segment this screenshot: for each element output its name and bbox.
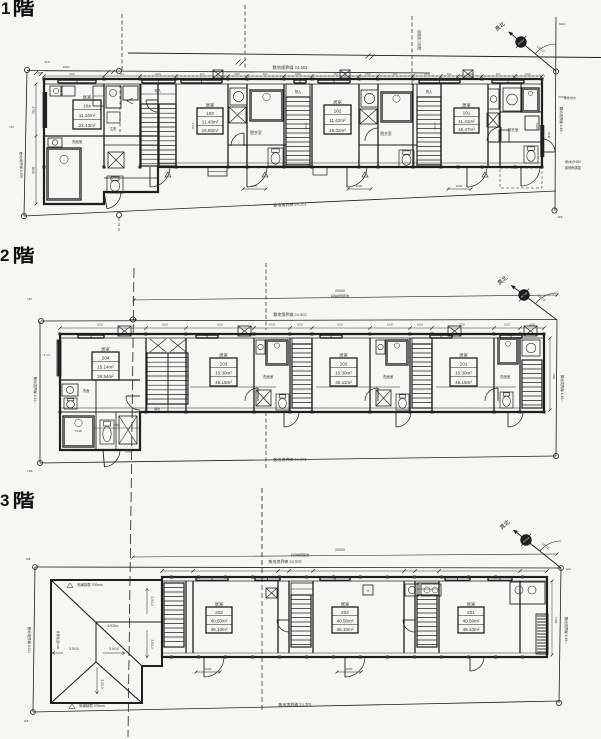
svg-text:H: H: [367, 588, 370, 593]
svg-text:1000: 1000: [346, 667, 353, 671]
svg-text:踊場: 踊場: [154, 406, 160, 411]
svg-text:15.30m²: 15.30m²: [335, 371, 352, 376]
svg-text:敷地境界線 24.201: 敷地境界線 24.201: [278, 701, 312, 708]
svg-text:斜線制限距離: 斜線制限距離: [331, 293, 349, 298]
svg-text:道路高さ制限: 道路高さ制限: [417, 30, 422, 51]
svg-text:敷地境界線 24.502: 敷地境界線 24.502: [273, 311, 307, 317]
svg-text:居室: 居室: [467, 601, 475, 608]
svg-text:910: 910: [200, 72, 205, 76]
svg-text:11.43m²: 11.43m²: [202, 119, 219, 124]
svg-text:40.50m²: 40.50m²: [211, 618, 228, 623]
svg-text:910: 910: [334, 72, 339, 76]
svg-text:№8: №8: [24, 719, 29, 723]
svg-text:910: 910: [263, 72, 268, 76]
svg-text:№9: №9: [566, 567, 571, 571]
svg-text:洗面室: 洗面室: [383, 374, 394, 379]
svg-text:1820: 1820: [525, 72, 531, 76]
svg-text:3.5/10: 3.5/10: [100, 679, 104, 688]
svg-text:203: 203: [215, 610, 223, 615]
svg-text:1000: 1000: [356, 184, 363, 188]
svg-text:7280: 7280: [552, 373, 556, 380]
svg-text:斜線制限 700mm: 斜線制限 700mm: [79, 703, 105, 708]
svg-text:洗面室: 洗面室: [500, 374, 511, 379]
svg-text:1000: 1000: [251, 184, 258, 188]
svg-text:階: 階: [13, 246, 35, 266]
svg-text:910: 910: [44, 60, 49, 64]
svg-text:1820: 1820: [424, 72, 430, 76]
svg-text:16.47m²: 16.47m²: [458, 127, 475, 132]
svg-text:1820: 1820: [387, 323, 394, 327]
svg-text:接続側溝蓋: 接続側溝蓋: [565, 165, 582, 170]
svg-text:1820: 1820: [295, 72, 301, 76]
svg-text:15.30m²: 15.30m²: [215, 371, 232, 376]
svg-text:洗濯: 洗濯: [125, 448, 131, 453]
svg-text:2730: 2730: [433, 123, 437, 130]
svg-text:居室: 居室: [215, 601, 223, 608]
svg-text:隣地境界線 4.45□: 隣地境界線 4.45□: [559, 107, 564, 134]
svg-text:45.15m²: 45.15m²: [215, 380, 232, 385]
svg-text:1820: 1820: [297, 323, 304, 327]
svg-text:16.02m²: 16.02m²: [329, 128, 346, 133]
svg-text:1000: 1000: [456, 184, 463, 188]
svg-text:455: 455: [37, 71, 42, 75]
svg-text:45.10m²: 45.10m²: [463, 627, 480, 632]
svg-text:6.526m: 6.526m: [108, 624, 119, 628]
svg-text:脱衣室: 脱衣室: [508, 127, 519, 132]
svg-text:22.43m²: 22.43m²: [79, 123, 96, 128]
svg-text:202: 202: [341, 610, 349, 615]
svg-text:斜線制限 700mm: 斜線制限 700mm: [77, 582, 103, 587]
svg-text:隣地境界線 4.45□: 隣地境界線 4.45□: [564, 617, 569, 644]
svg-text:敷地境界線 24.502: 敷地境界線 24.502: [268, 558, 302, 564]
svg-text:104: 104: [83, 104, 91, 109]
svg-text:11.42m²: 11.42m²: [329, 118, 346, 123]
svg-text:敷地境界線 8.206: 敷地境界線 8.206: [19, 152, 25, 179]
svg-text:910: 910: [496, 72, 501, 76]
svg-text:1820: 1820: [417, 323, 424, 327]
svg-text:1820: 1820: [97, 323, 104, 327]
svg-text:45.11m²: 45.11m²: [335, 380, 352, 385]
svg-text:16.82m²: 16.82m²: [202, 128, 219, 133]
svg-text:3.5/10: 3.5/10: [69, 647, 79, 651]
svg-text:40.50m²: 40.50m²: [337, 618, 354, 623]
svg-text:204: 204: [102, 355, 110, 360]
svg-text:玄関: 玄関: [110, 126, 116, 131]
svg-text:居室: 居室: [206, 102, 214, 109]
svg-text:3.5/10: 3.5/10: [109, 647, 119, 651]
svg-text:敷地境界線 4.41□: 敷地境界線 4.41□: [33, 377, 38, 404]
svg-text:201: 201: [460, 361, 468, 366]
svg-text:居室: 居室: [83, 94, 91, 101]
svg-text:隣地境界線 4.45□: 隣地境界線 4.45□: [560, 375, 565, 402]
svg-text:203: 203: [220, 361, 228, 366]
svg-text:2730: 2730: [304, 123, 308, 130]
svg-text:居室: 居室: [462, 102, 470, 109]
svg-text:1820: 1820: [63, 65, 70, 69]
svg-text:40.50m²: 40.50m²: [463, 618, 480, 623]
svg-text:外壁後退1100: 外壁後退1100: [56, 631, 61, 650]
svg-text:YS18: YS18: [74, 429, 82, 433]
svg-text:1820: 1820: [365, 72, 371, 76]
svg-text:1820: 1820: [234, 72, 240, 76]
svg-text:居室: 居室: [459, 352, 467, 359]
svg-text:1: 1: [1, 0, 10, 18]
svg-text:103: 103: [206, 111, 214, 116]
svg-text:11.16m²: 11.16m²: [79, 113, 96, 118]
svg-text:102: 102: [334, 109, 342, 114]
svg-text:1820: 1820: [69, 72, 75, 76]
svg-text:15.30m²: 15.30m²: [455, 371, 472, 376]
svg-text:№7: №7: [10, 125, 15, 129]
svg-text:1820: 1820: [504, 323, 511, 327]
svg-text:物入: 物入: [426, 89, 433, 94]
svg-text:隣地 排水: 隣地 排水: [564, 96, 576, 100]
svg-text:斜線制限距離: 斜線制限距離: [291, 552, 309, 557]
svg-text:1820: 1820: [337, 323, 344, 327]
svg-text:2: 2: [0, 246, 9, 265]
svg-text:1820: 1820: [162, 323, 169, 327]
svg-text:45.10m²: 45.10m²: [337, 627, 354, 632]
svg-text:910: 910: [447, 72, 452, 76]
svg-text:201: 201: [467, 610, 475, 615]
svg-text:1820: 1820: [269, 323, 276, 327]
svg-text:洗面室: 洗面室: [263, 374, 274, 379]
svg-text:№9: №9: [558, 215, 563, 219]
svg-text:3: 3: [0, 491, 9, 510]
svg-text:7280: 7280: [554, 617, 558, 624]
svg-text:敷地境界線 24.502: 敷地境界線 24.502: [273, 64, 309, 71]
svg-text:物入: 物入: [295, 89, 302, 94]
svg-text:5.1m: 5.1m: [44, 353, 51, 357]
svg-text:洗面室: 洗面室: [72, 139, 83, 144]
svg-text:3640: 3640: [31, 166, 35, 173]
svg-text:910: 910: [393, 72, 398, 76]
svg-text:2730: 2730: [31, 106, 35, 113]
svg-text:居室: 居室: [219, 352, 227, 359]
svg-text:45.15m²: 45.15m²: [455, 380, 472, 385]
svg-text:№7: №7: [28, 297, 33, 301]
svg-text:№10: №10: [559, 22, 566, 26]
svg-text:№8: №8: [26, 557, 31, 561]
svg-text:敷地境界線 8.511: 敷地境界線 8.511: [27, 627, 32, 653]
svg-text:101: 101: [463, 111, 471, 116]
svg-text:1000: 1000: [205, 667, 212, 671]
svg-text:3.5/10: 3.5/10: [150, 596, 154, 605]
svg-text:居室: 居室: [333, 99, 341, 106]
svg-text:居室: 居室: [341, 601, 349, 608]
svg-text:4549: 4549: [547, 132, 551, 139]
svg-text:脱衣室: 脱衣室: [250, 130, 262, 135]
svg-text:20000: 20000: [335, 548, 345, 552]
svg-text:590: 590: [114, 423, 119, 427]
svg-text:20000: 20000: [335, 289, 345, 293]
svg-text:202: 202: [340, 361, 348, 366]
svg-text:№8: №8: [28, 469, 33, 473]
svg-text:910: 910: [120, 72, 125, 76]
svg-text:物入: 物入: [155, 88, 162, 93]
svg-text:居室: 居室: [339, 352, 347, 359]
svg-text:3.5/10: 3.5/10: [150, 639, 154, 648]
svg-text:15.14m²: 15.14m²: [97, 365, 114, 370]
svg-text:階: 階: [13, 0, 35, 19]
svg-text:敷地境界線 24.201: 敷地境界線 24.201: [273, 456, 307, 462]
svg-text:2730: 2730: [191, 123, 195, 130]
svg-text:1820: 1820: [217, 323, 224, 327]
svg-text:26.54m²: 26.54m²: [97, 374, 114, 379]
svg-text:1820: 1820: [535, 123, 539, 130]
svg-text:洗面: 洗面: [83, 388, 90, 393]
svg-text:脱衣室: 脱衣室: [380, 131, 392, 136]
svg-text:階: 階: [13, 491, 35, 511]
svg-text:45.10m²: 45.10m²: [211, 627, 228, 632]
svg-text:雨水∅450: 雨水∅450: [565, 159, 581, 164]
svg-text:1820: 1820: [155, 72, 161, 76]
svg-text:11.41m²: 11.41m²: [458, 119, 475, 124]
svg-text:居室: 居室: [101, 346, 109, 353]
